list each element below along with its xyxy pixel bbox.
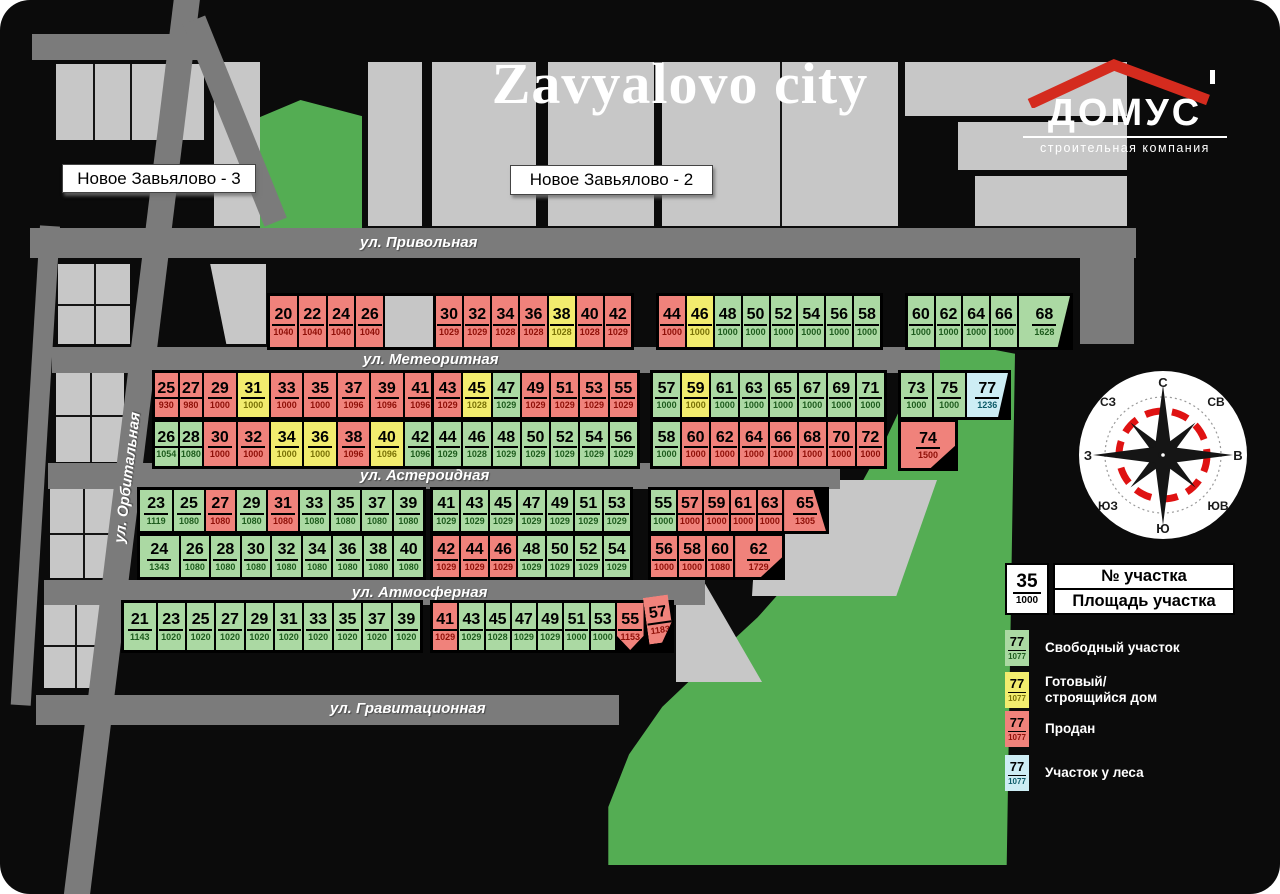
plot-area: 1096 [343,400,363,410]
plot-27[interactable]: 27980 [180,373,203,417]
plot-number: 36 [308,429,332,448]
plot-29[interactable]: 291020 [246,603,273,650]
plot-77[interactable]: 771236 [967,373,1009,417]
plot-53[interactable]: 531000 [591,603,615,650]
plot-48[interactable]: 481000 [715,296,741,347]
plot-26[interactable]: 261054 [155,422,178,466]
block-divider [130,64,132,140]
plot-72[interactable]: 721000 [857,422,884,466]
plot-30[interactable]: 301029 [436,296,462,347]
plot-area: 1080 [277,562,297,572]
legend-key: 35 1000 № участка Площадь участка [1005,563,1235,615]
plot-46[interactable]: 461028 [463,422,490,466]
plot-43[interactable]: 431029 [434,373,461,417]
plot-54[interactable]: 541029 [604,536,630,577]
plot-32[interactable]: 321000 [238,422,269,466]
plot-62[interactable]: 621729 [735,536,782,577]
plot-30[interactable]: 301080 [242,536,271,577]
plot-area: 1029 [525,400,545,410]
plot-area: 1000 [243,400,263,410]
plot-20[interactable]: 201040 [270,296,297,347]
plot-63[interactable]: 631000 [758,490,783,531]
plot-41[interactable]: 411029 [433,603,457,650]
plot-number: 36 [522,306,546,325]
plot-49[interactable]: 491029 [538,603,562,650]
compass-ne: СВ [1207,395,1225,409]
plot-area: 1000 [566,632,586,642]
plot-39[interactable]: 391020 [393,603,420,650]
plot-number: 28 [180,429,203,448]
plot-73[interactable]: 731000 [901,373,932,417]
plot-number: 37 [342,380,366,399]
plot-area: 1029 [439,327,459,337]
plot-area: 1080 [179,516,199,526]
plot-23[interactable]: 231020 [158,603,185,650]
legend-label-sold: Продан [1045,721,1185,737]
plot-area: 1029 [514,632,534,642]
plot-number: 64 [742,429,766,448]
plot-52[interactable]: 521000 [771,296,797,347]
plot-number: 40 [578,306,602,325]
plot-area: 1029 [493,516,513,526]
plot-42[interactable]: 421029 [605,296,631,347]
plot-57[interactable]: 571000 [678,490,703,531]
plot-area: 930 [159,400,174,410]
plot-number: 49 [548,495,572,514]
plot-number: 32 [465,306,489,325]
plot-number: 72 [859,429,883,448]
legend-chip-area: 1077 [1008,777,1026,786]
plot-43[interactable]: 431029 [461,490,487,531]
plot-area: 1080 [273,516,293,526]
plot-number: 37 [365,611,389,630]
plot-number: 59 [705,495,729,514]
plot-number: 62 [713,429,737,448]
plot-34[interactable]: 341028 [492,296,518,347]
plot-37[interactable]: 371020 [363,603,390,650]
logo-subtitle: строительная компания [1015,141,1235,155]
plot-area: 1343 [149,562,169,572]
plot-56[interactable]: 561029 [610,422,637,466]
plot-number: 53 [582,380,606,399]
plot-area: 1000 [593,632,613,642]
plot-area: 1000 [243,449,263,459]
plot-area: 1029 [584,449,604,459]
compass-se: ЮВ [1207,499,1228,513]
plot-61[interactable]: 611000 [711,373,738,417]
plot-number: 45 [491,495,515,514]
plot-number: 30 [208,429,232,448]
plot-59[interactable]: 591000 [704,490,729,531]
plot-area: 1000 [802,400,822,410]
plot-number: 53 [591,611,615,630]
plot-46[interactable]: 461000 [687,296,713,347]
plot-38[interactable]: 381028 [549,296,575,347]
plot-55[interactable]: 551153 [617,603,644,650]
legend-item-forest: 77 1077 Участок у леса [1005,755,1185,791]
plot-area: 1029 [467,327,487,337]
plot-44[interactable]: 441000 [659,296,685,347]
plot-56[interactable]: 561000 [826,296,852,347]
plot-number: 41 [433,611,457,630]
plot-47[interactable]: 471029 [512,603,536,650]
plot-number: 45 [486,611,510,630]
road [32,34,204,60]
plot-block-b2b: 4410294610284810295010295210295410295610… [431,419,640,469]
plot-area: 1040 [331,327,351,337]
plot-70[interactable]: 701000 [828,422,855,466]
plot-23[interactable]: 231119 [140,490,172,531]
plot-area: 1029 [607,562,627,572]
plot-area: 1020 [279,632,299,642]
plot-area: 1080 [368,562,388,572]
plot-30[interactable]: 301000 [204,422,235,466]
plot-number: 50 [548,541,572,560]
plot-32[interactable]: 321080 [272,536,301,577]
plot-number: 49 [524,380,548,399]
plot-53[interactable]: 531029 [580,373,607,417]
plot-area: 1029 [578,562,598,572]
plot-number: 53 [605,495,629,514]
plot-area: 1305 [795,516,815,526]
plot-area: 1096 [377,400,397,410]
block-divider [58,304,130,306]
plot-area: 1000 [277,449,297,459]
plot-area: 1029 [435,632,455,642]
plot-number: 39 [375,380,399,399]
plot-number: 33 [306,611,330,630]
site-plan-page: 2010402210402410402610403010293210293410… [0,0,1280,894]
plot-number: 20 [272,306,296,325]
plot-number: 39 [396,495,420,514]
plot-21[interactable]: 211143 [124,603,156,650]
plot-27[interactable]: 271080 [206,490,235,531]
plot-66[interactable]: 661000 [770,422,797,466]
plot-37[interactable]: 371096 [338,373,369,417]
plot-46[interactable]: 461029 [490,536,516,577]
plot-area: 1000 [966,327,986,337]
plot-43[interactable]: 431029 [459,603,483,650]
plot-35[interactable]: 351020 [334,603,361,650]
plot-48[interactable]: 481029 [493,422,520,466]
plot-number: 50 [744,306,768,325]
plot-area: 1029 [555,400,575,410]
plot-number: 75 [937,380,961,399]
plot-34[interactable]: 341080 [303,536,332,577]
plot-55[interactable]: 551000 [651,490,676,531]
plot-35[interactable]: 351000 [304,373,335,417]
plot-56[interactable]: 561000 [651,536,677,577]
plot-area: 1119 [147,516,166,526]
plot-number: 41 [408,380,432,399]
plot-area: 1000 [653,516,673,526]
plot-number: 32 [241,429,265,448]
plot-27[interactable]: 271020 [216,603,243,650]
plot-number: 74 [916,430,940,449]
plot-area: 1000 [277,400,297,410]
block-divider [50,533,116,535]
plot-number: 31 [271,495,295,514]
plot-45[interactable]: 451028 [486,603,510,650]
plot-area: 1020 [220,632,240,642]
plot-40[interactable]: 401080 [394,536,423,577]
plot-39[interactable]: 391080 [394,490,423,531]
legend-key-area-label: Площадь участка [1055,590,1233,612]
plot-number: 30 [244,541,268,560]
plot-41[interactable]: 411029 [433,490,459,531]
plot-area: 1029 [461,632,481,642]
plot-36[interactable]: 361028 [520,296,546,347]
plot-area: 1000 [210,449,230,459]
plot-area: 1096 [377,449,397,459]
plot-area: 1000 [662,327,682,337]
plot-25[interactable]: 25930 [155,373,178,417]
company-logo: ДОМУС строительная компания [1015,56,1235,155]
plot-block-a1: 201040221040241040261040 [267,293,450,350]
plot-number: 50 [524,429,548,448]
plot-51[interactable]: 511000 [564,603,588,650]
legend-chip-number: 77 [1008,716,1026,731]
plot-51[interactable]: 511029 [551,373,578,417]
plot-31[interactable]: 311000 [238,373,269,417]
plot-number: 65 [771,380,795,399]
plot-area: 1080 [210,516,230,526]
plot-64[interactable]: 641000 [963,296,989,347]
map-canvas: 2010402210402410402610403010293210293410… [0,0,1280,894]
plot-68[interactable]: 681000 [799,422,826,466]
plot-65[interactable]: 651000 [770,373,797,417]
plot-71[interactable]: 711000 [857,373,884,417]
plot-54[interactable]: 541000 [798,296,824,347]
plot-74[interactable]: 741500 [901,422,955,468]
plot-number: 61 [731,495,755,514]
plot-24[interactable]: 241040 [328,296,355,347]
plot-number: 62 [937,306,961,325]
plot-area: 1020 [338,632,358,642]
plot-number: 52 [772,306,796,325]
plot-65[interactable]: 651305 [784,490,826,531]
plot-number: 46 [465,429,489,448]
plot-25[interactable]: 251080 [174,490,203,531]
plot-22[interactable]: 221040 [299,296,326,347]
plot-59[interactable]: 591000 [682,373,709,417]
plot-57[interactable]: 571000 [653,373,680,417]
plot-area: 1080 [338,562,358,572]
road [36,695,619,725]
plot-number: 34 [493,306,517,325]
plot-57[interactable]: 571183 [642,594,674,644]
plot-55[interactable]: 551029 [610,373,637,417]
plot-54[interactable]: 541029 [580,422,607,466]
plot-50[interactable]: 501029 [547,536,573,577]
plot-area: 1000 [994,327,1014,337]
plot-39[interactable]: 391096 [371,373,402,417]
plot-area: 1029 [438,449,458,459]
plot-75[interactable]: 751000 [934,373,965,417]
plot-number: 68 [1032,306,1056,325]
plot-number: 47 [520,495,544,514]
plot-49[interactable]: 491029 [547,490,573,531]
plot-number: 60 [708,541,732,560]
plot-area: 1080 [399,562,419,572]
plot-number: 73 [904,380,928,399]
plot-58[interactable]: 581000 [679,536,705,577]
plot-58[interactable]: 581000 [653,422,680,466]
plot-area: 1020 [161,632,181,642]
plot-63[interactable]: 631000 [740,373,767,417]
plot-36[interactable]: 361000 [304,422,335,466]
plot-number: 66 [992,306,1016,325]
plot-48[interactable]: 481029 [518,536,544,577]
plot-number: 26 [155,429,178,448]
plot-area: 1080 [181,449,201,459]
plot-60[interactable]: 601080 [707,536,733,577]
plot-60[interactable]: 601000 [908,296,934,347]
legend-chip-house: 77 1077 [1005,672,1029,708]
plot-61[interactable]: 611000 [731,490,756,531]
compass-n: С [1158,375,1168,390]
plot-number: 42 [408,429,432,448]
plot-block-c1b: 4110294310294510294710294910295110295310… [430,487,633,534]
plot-42[interactable]: 421029 [433,536,459,577]
plot-62[interactable]: 621000 [711,422,738,466]
plot-area: 1029 [465,562,485,572]
legend-chip-free: 77 1077 [1005,630,1029,666]
plot-53[interactable]: 531029 [604,490,630,531]
plot-64[interactable]: 641000 [740,422,767,466]
plot-62[interactable]: 621000 [936,296,962,347]
plot-number: 70 [829,429,853,448]
plot-31[interactable]: 311020 [275,603,302,650]
plot-number: 67 [800,380,824,399]
plot-block-b1a: 2593027980291000311000331000351000371096… [152,370,439,420]
plot-68[interactable]: 681628 [1019,296,1070,347]
block-divider [93,64,95,140]
plot-number: 31 [241,380,265,399]
plot-47[interactable]: 471029 [518,490,544,531]
plot-66[interactable]: 661000 [991,296,1017,347]
plot-28[interactable]: 281080 [180,422,203,466]
plot-37[interactable]: 371080 [362,490,391,531]
legend-label-forest: Участок у леса [1045,765,1185,781]
plot-number: 43 [463,495,487,514]
plot-33[interactable]: 331000 [271,373,302,417]
plot-area: 1000 [657,400,677,410]
plot-number: 68 [800,429,824,448]
plot-area: 1000 [773,449,793,459]
plot-area: 1000 [310,449,330,459]
plot-50[interactable]: 501029 [522,422,549,466]
plot-number: 38 [550,306,574,325]
plot-47[interactable]: 471029 [493,373,520,417]
plot-40[interactable]: 401096 [371,422,402,466]
plot-40[interactable]: 401028 [577,296,603,347]
plot-number: 51 [565,611,589,630]
plot-area: 1080 [215,562,235,572]
plot-area: 1000 [801,327,821,337]
plot-area: 1029 [465,516,485,526]
plot-area: 1000 [906,400,926,410]
plot-number: 57 [678,495,702,514]
plot-44[interactable]: 441029 [434,422,461,466]
plot-52[interactable]: 521029 [575,536,601,577]
plot-34[interactable]: 341000 [271,422,302,466]
plot-number: 56 [827,306,851,325]
plot-area: 1020 [367,632,387,642]
plot-29[interactable]: 291080 [237,490,266,531]
plot-33[interactable]: 331020 [304,603,331,650]
plot-number: 55 [618,611,642,630]
plot-36[interactable]: 361080 [333,536,362,577]
plot-block-b1d: 731000751000771236 [898,370,1011,420]
plot-38[interactable]: 381080 [364,536,393,577]
plot-area: 1096 [410,400,430,410]
plot-area: 1000 [654,562,674,572]
plot-area: 1040 [302,327,322,337]
plot-52[interactable]: 521029 [551,422,578,466]
plot-number: 54 [582,429,606,448]
compass-w: З [1084,448,1092,463]
plot-area: 1080 [242,516,262,526]
plot-number: 39 [394,611,418,630]
plot-area: 980 [183,400,198,410]
plot-58[interactable]: 581000 [854,296,880,347]
plot-block-a2: 3010293210293410283610283810284010284210… [433,293,634,350]
plot-26[interactable]: 261080 [181,536,210,577]
plot-33[interactable]: 331080 [300,490,329,531]
plot-number: 46 [491,541,515,560]
compass-e: В [1233,448,1242,463]
plot-block-a3: 4410004610004810005010005210005410005610… [656,293,883,350]
plot-block-d1: 2111432310202510202710202910203110203310… [121,600,423,653]
plot-area: 1028 [552,327,572,337]
plot-number: 44 [660,306,684,325]
plot-31[interactable]: 311080 [268,490,297,531]
plot-area: 1000 [680,516,700,526]
plot-38[interactable]: 381096 [338,422,369,466]
plot-60[interactable]: 601000 [682,422,709,466]
plot-number: 25 [189,611,213,630]
plot-51[interactable]: 511029 [575,490,601,531]
plot-area: 1029 [608,327,628,337]
street-label-atmosfernaya: ул. Атмосферная [352,584,487,601]
plot-number: 44 [436,429,460,448]
legend-key-number-label: № участка [1055,566,1233,590]
plot-25[interactable]: 251020 [187,603,214,650]
plot-number: 56 [652,541,676,560]
plot-number: 66 [771,429,795,448]
plot-69[interactable]: 691000 [828,373,855,417]
plot-32[interactable]: 321029 [464,296,490,347]
plot-number: 57 [655,380,679,399]
plot-28[interactable]: 281080 [211,536,240,577]
plot-49[interactable]: 491029 [522,373,549,417]
plot-number: 22 [300,306,324,325]
plot-number: 41 [434,495,458,514]
plot-44[interactable]: 441029 [461,536,487,577]
plot-number: 63 [758,495,782,514]
plot-67[interactable]: 671000 [799,373,826,417]
plot-45[interactable]: 451028 [463,373,490,417]
plot-24[interactable]: 241343 [140,536,179,577]
plot-26[interactable]: 261040 [356,296,383,347]
plot-block-c1c: 551000571000591000611000631000651305 [648,487,829,534]
plot-35[interactable]: 351080 [331,490,360,531]
plot-45[interactable]: 451029 [490,490,516,531]
plot-50[interactable]: 501000 [743,296,769,347]
plot-29[interactable]: 291000 [204,373,235,417]
plot-number: 55 [651,495,675,514]
